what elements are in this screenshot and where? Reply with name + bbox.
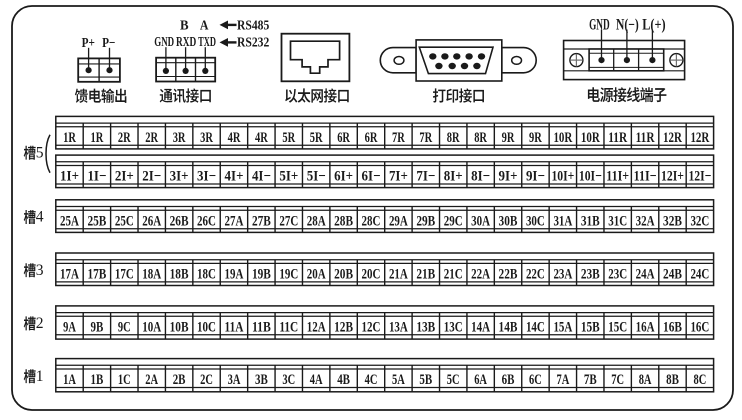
svg-text:18B: 18B (170, 267, 189, 283)
svg-text:8R: 8R (447, 130, 460, 146)
svg-text:P−: P− (102, 36, 115, 51)
svg-text:P+: P+ (82, 36, 95, 51)
svg-text:24C: 24C (690, 267, 709, 283)
svg-text:10I+: 10I+ (551, 169, 574, 185)
svg-text:RS485: RS485 (237, 19, 269, 34)
svg-text:9I−: 9I− (526, 169, 545, 185)
svg-text:9C: 9C (118, 319, 131, 335)
svg-text:15C: 15C (608, 319, 627, 335)
svg-text:10R: 10R (581, 130, 600, 146)
svg-text:8R: 8R (474, 130, 487, 146)
svg-text:32B: 32B (663, 213, 682, 229)
svg-text:3: 3 (36, 262, 44, 279)
svg-text:16C: 16C (690, 319, 709, 335)
svg-text:19B: 19B (252, 267, 271, 283)
svg-text:2B: 2B (173, 372, 186, 388)
svg-text:B: B (180, 18, 189, 33)
svg-text:13A: 13A (389, 319, 408, 335)
svg-text:12B: 12B (334, 319, 353, 335)
svg-text:9R: 9R (529, 130, 542, 146)
svg-text:25B: 25B (87, 213, 106, 229)
svg-text:27C: 27C (279, 213, 298, 229)
svg-text:30A: 30A (471, 213, 490, 229)
svg-text:13C: 13C (444, 319, 463, 335)
svg-text:8I+: 8I+ (444, 169, 463, 185)
svg-text:4C: 4C (365, 372, 378, 388)
svg-text:30C: 30C (526, 213, 545, 229)
svg-text:15B: 15B (581, 319, 600, 335)
svg-text:5C: 5C (447, 372, 460, 388)
svg-text:1B: 1B (91, 372, 104, 388)
svg-text:5I+: 5I+ (279, 169, 298, 185)
svg-text:3C: 3C (282, 372, 295, 388)
svg-text:1R: 1R (91, 130, 104, 146)
svg-text:26A: 26A (142, 213, 161, 229)
svg-text:26C: 26C (197, 213, 216, 229)
svg-text:16B: 16B (663, 319, 682, 335)
svg-text:29B: 29B (416, 213, 435, 229)
svg-text:27A: 27A (225, 213, 244, 229)
svg-text:29C: 29C (444, 213, 463, 229)
svg-text:12I−: 12I− (688, 169, 711, 185)
svg-text:1R: 1R (63, 130, 76, 146)
svg-text:14B: 14B (499, 319, 518, 335)
svg-text:3R: 3R (200, 130, 213, 146)
svg-text:7I+: 7I+ (389, 169, 408, 185)
svg-text:6B: 6B (502, 372, 515, 388)
svg-text:11A: 11A (225, 319, 244, 335)
svg-text:4I−: 4I− (252, 169, 271, 185)
svg-text:4I+: 4I+ (225, 169, 244, 185)
svg-text:5R: 5R (282, 130, 295, 146)
svg-text:25C: 25C (115, 213, 134, 229)
svg-text:22B: 22B (499, 267, 518, 283)
svg-text:5: 5 (36, 144, 44, 161)
svg-text:7R: 7R (419, 130, 432, 146)
svg-text:9R: 9R (502, 130, 515, 146)
svg-text:GND: GND (589, 16, 610, 33)
svg-text:4A: 4A (310, 372, 323, 388)
svg-text:4B: 4B (337, 372, 350, 388)
svg-text:24A: 24A (636, 267, 655, 283)
svg-text:27B: 27B (252, 213, 271, 229)
svg-text:3I−: 3I− (197, 169, 216, 185)
svg-text:20B: 20B (334, 267, 353, 283)
svg-text:5A: 5A (392, 372, 405, 388)
svg-text:4: 4 (36, 209, 44, 226)
svg-text:10R: 10R (553, 130, 572, 146)
svg-text:17B: 17B (87, 267, 106, 283)
svg-text:18A: 18A (142, 267, 161, 283)
svg-text:11C: 11C (279, 319, 298, 335)
svg-text:19A: 19A (225, 267, 244, 283)
svg-text:9B: 9B (91, 319, 104, 335)
svg-text:30B: 30B (499, 213, 518, 229)
svg-text:6R: 6R (365, 130, 378, 146)
svg-text:23A: 23A (553, 267, 572, 283)
svg-text:5I−: 5I− (307, 169, 326, 185)
svg-text:2I+: 2I+ (115, 169, 134, 185)
svg-text:4R: 4R (228, 130, 241, 146)
svg-text:21C: 21C (444, 267, 463, 283)
svg-text:25A: 25A (60, 213, 79, 229)
svg-text:21A: 21A (389, 267, 408, 283)
svg-text:11I+: 11I+ (606, 169, 629, 185)
svg-text:21B: 21B (416, 267, 435, 283)
svg-text:11R: 11R (636, 130, 655, 146)
svg-text:TXD: TXD (198, 35, 216, 50)
svg-text:8C: 8C (694, 372, 707, 388)
svg-text:14C: 14C (526, 319, 545, 335)
svg-text:3I+: 3I+ (170, 169, 189, 185)
svg-text:24B: 24B (663, 267, 682, 283)
svg-text:17C: 17C (115, 267, 134, 283)
svg-text:20A: 20A (307, 267, 326, 283)
svg-text:N(−): N(−) (616, 16, 639, 33)
svg-text:6C: 6C (529, 372, 542, 388)
svg-text:RS232: RS232 (237, 36, 269, 51)
svg-text:7R: 7R (392, 130, 405, 146)
svg-text:5B: 5B (419, 372, 432, 388)
svg-text:32A: 32A (636, 213, 655, 229)
svg-text:7B: 7B (584, 372, 597, 388)
svg-text:3B: 3B (255, 372, 268, 388)
svg-text:2C: 2C (200, 372, 213, 388)
svg-text:31A: 31A (553, 213, 572, 229)
svg-text:7I−: 7I− (416, 169, 435, 185)
svg-text:3R: 3R (173, 130, 186, 146)
svg-text:1A: 1A (63, 372, 76, 388)
svg-text:22A: 22A (471, 267, 490, 283)
svg-text:11R: 11R (608, 130, 627, 146)
svg-text:14A: 14A (471, 319, 490, 335)
svg-text:22C: 22C (526, 267, 545, 283)
svg-text:29A: 29A (389, 213, 408, 229)
svg-text:6R: 6R (337, 130, 350, 146)
svg-text:31B: 31B (581, 213, 600, 229)
svg-text:10B: 10B (170, 319, 189, 335)
svg-text:1I−: 1I− (87, 169, 106, 185)
svg-text:2R: 2R (145, 130, 158, 146)
svg-text:1: 1 (36, 368, 44, 385)
svg-text:10A: 10A (142, 319, 161, 335)
svg-text:11I−: 11I− (634, 169, 657, 185)
svg-text:23C: 23C (608, 267, 627, 283)
svg-text:2R: 2R (118, 130, 131, 146)
svg-text:12I+: 12I+ (661, 169, 684, 185)
svg-text:7C: 7C (611, 372, 624, 388)
svg-text:6I−: 6I− (362, 169, 381, 185)
svg-text:28B: 28B (334, 213, 353, 229)
svg-text:2A: 2A (145, 372, 158, 388)
svg-text:3A: 3A (228, 372, 241, 388)
svg-text:GND: GND (154, 35, 174, 50)
svg-text:1C: 1C (118, 372, 131, 388)
svg-text:1I+: 1I+ (60, 169, 79, 185)
svg-text:2I−: 2I− (142, 169, 161, 185)
svg-text:18C: 18C (197, 267, 216, 283)
svg-text:8B: 8B (666, 372, 679, 388)
svg-text:17A: 17A (60, 267, 79, 283)
svg-text:6I+: 6I+ (334, 169, 353, 185)
svg-text:4R: 4R (255, 130, 268, 146)
svg-text:12C: 12C (362, 319, 381, 335)
svg-text:28A: 28A (307, 213, 326, 229)
svg-text:28C: 28C (362, 213, 381, 229)
svg-text:16A: 16A (636, 319, 655, 335)
svg-text:2: 2 (36, 315, 44, 332)
svg-text:31C: 31C (608, 213, 627, 229)
svg-text:A: A (200, 18, 209, 33)
svg-text:23B: 23B (581, 267, 600, 283)
svg-text:12R: 12R (690, 130, 709, 146)
svg-text:12R: 12R (663, 130, 682, 146)
svg-text:32C: 32C (690, 213, 709, 229)
svg-text:26B: 26B (170, 213, 189, 229)
svg-text:15A: 15A (553, 319, 572, 335)
svg-text:8I−: 8I− (471, 169, 490, 185)
svg-text:13B: 13B (416, 319, 435, 335)
svg-text:20C: 20C (362, 267, 381, 283)
svg-text:7A: 7A (557, 372, 570, 388)
svg-text:19C: 19C (279, 267, 298, 283)
svg-text:9A: 9A (63, 319, 76, 335)
svg-text:RXD: RXD (176, 35, 196, 50)
svg-text:6A: 6A (474, 372, 487, 388)
svg-text:12A: 12A (307, 319, 326, 335)
svg-text:8A: 8A (639, 372, 652, 388)
svg-text:5R: 5R (310, 130, 323, 146)
svg-text:10I−: 10I− (579, 169, 602, 185)
svg-text:11B: 11B (252, 319, 271, 335)
svg-text:10C: 10C (197, 319, 216, 335)
svg-text:L(+): L(+) (642, 16, 665, 33)
svg-text:9I+: 9I+ (499, 169, 518, 185)
